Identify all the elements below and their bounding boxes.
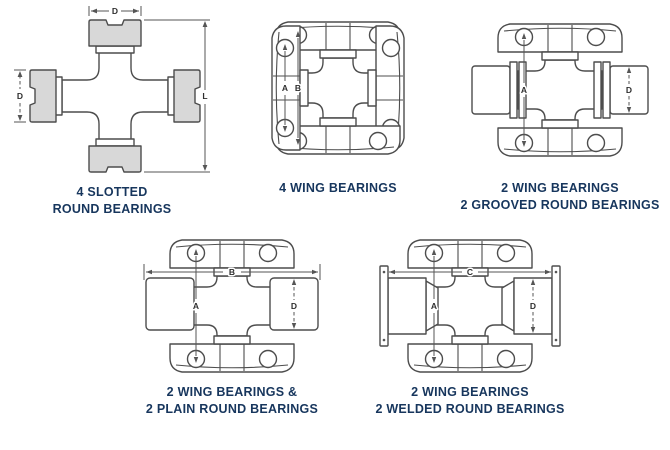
caption-line-2: ROUND BEARINGS xyxy=(53,201,172,218)
cross-body xyxy=(518,60,602,120)
figure-caption: 4 WING BEARINGS xyxy=(279,180,397,197)
bearing-types-diagram-sheet: D D L 4 SLOTTED ROUND BEARINGS xyxy=(0,0,670,450)
dim-label-d-left: D xyxy=(17,91,23,101)
dimension-d-left: D xyxy=(14,70,26,122)
dim-label-c: C xyxy=(467,267,473,277)
cross-body xyxy=(428,276,512,336)
dim-label-a: A xyxy=(431,301,437,311)
dim-label-d-top: D xyxy=(112,6,118,16)
bearing-seat-bottom xyxy=(96,139,134,146)
dim-label-a: A xyxy=(521,85,527,95)
cross-body xyxy=(190,276,274,336)
dim-label-d: D xyxy=(530,301,536,311)
caption-line-2: 2 GROOVED ROUND BEARINGS xyxy=(460,197,659,214)
caption-line-1: 2 WING BEARINGS & xyxy=(146,384,318,401)
cross-body xyxy=(62,52,168,140)
wing-bearing-top xyxy=(498,24,622,60)
caption-line-1: 4 WING BEARINGS xyxy=(279,180,397,197)
figure-4-wing-bearings: A B 4 WING BEARINGS xyxy=(238,4,438,197)
wing-bearing-bottom xyxy=(170,336,294,372)
caption-line-2: 2 WELDED ROUND BEARINGS xyxy=(375,401,564,418)
figure-2-wing-2-welded-round-bearings: C A D 2 WING BEARINGS 2 WELDED ROUND BEA… xyxy=(370,228,570,417)
caption-line-1: 2 WING BEARINGS xyxy=(375,384,564,401)
figure-4-slotted-round-bearings: D D L 4 SLOTTED ROUND BEARINGS xyxy=(12,4,212,217)
slotted-round-bearing-bottom xyxy=(89,146,141,172)
dim-label-b: B xyxy=(295,83,301,93)
dim-label-a: A xyxy=(282,83,288,93)
figure-caption: 4 SLOTTED ROUND BEARINGS xyxy=(53,184,172,217)
slotted-round-bearing-top xyxy=(89,20,141,46)
dim-label-b: B xyxy=(229,267,235,277)
caption-line-2: 2 PLAIN ROUND BEARINGS xyxy=(146,401,318,418)
u-joint-2-wing-2-plain-round-drawing: B A D xyxy=(132,228,332,380)
caption-line-1: 2 WING BEARINGS xyxy=(460,180,659,197)
u-joint-4-slotted-round-bearings-drawing: D D L xyxy=(12,4,212,180)
u-joint-2-wing-2-welded-round-drawing: C A D xyxy=(370,228,570,380)
u-joint-2-wing-2-grooved-round-drawing: A D xyxy=(460,4,660,176)
wing-bearing-bottom xyxy=(408,336,532,372)
slotted-round-bearing-left xyxy=(30,70,56,122)
dimension-d-top: D xyxy=(89,6,141,16)
figure-2-wing-2-grooved-round-bearings: A D 2 WING BEARINGS 2 GROOVED ROUND BEAR… xyxy=(460,4,660,213)
figure-caption: 2 WING BEARINGS 2 GROOVED ROUND BEARINGS xyxy=(460,180,659,213)
dim-label-a: A xyxy=(193,301,199,311)
u-joint-4-wing-bearings-drawing: A B xyxy=(238,4,438,176)
slotted-round-bearing-right xyxy=(174,70,200,122)
dim-label-d: D xyxy=(626,85,632,95)
figure-caption: 2 WING BEARINGS 2 WELDED ROUND BEARINGS xyxy=(375,384,564,417)
bearing-seat-top xyxy=(96,46,134,53)
dim-label-l: L xyxy=(202,91,207,101)
plain-round-bearing-left xyxy=(146,278,194,330)
welded-round-bearing-left xyxy=(380,266,438,346)
caption-line-1: 4 SLOTTED xyxy=(53,184,172,201)
wing-bearing-bottom xyxy=(498,120,622,156)
figure-caption: 2 WING BEARINGS & 2 PLAIN ROUND BEARINGS xyxy=(146,384,318,417)
figure-2-wing-2-plain-round-bearings: B A D 2 WING BEARINGS & 2 PLAIN ROUND BE… xyxy=(132,228,332,417)
dim-label-d: D xyxy=(291,301,297,311)
